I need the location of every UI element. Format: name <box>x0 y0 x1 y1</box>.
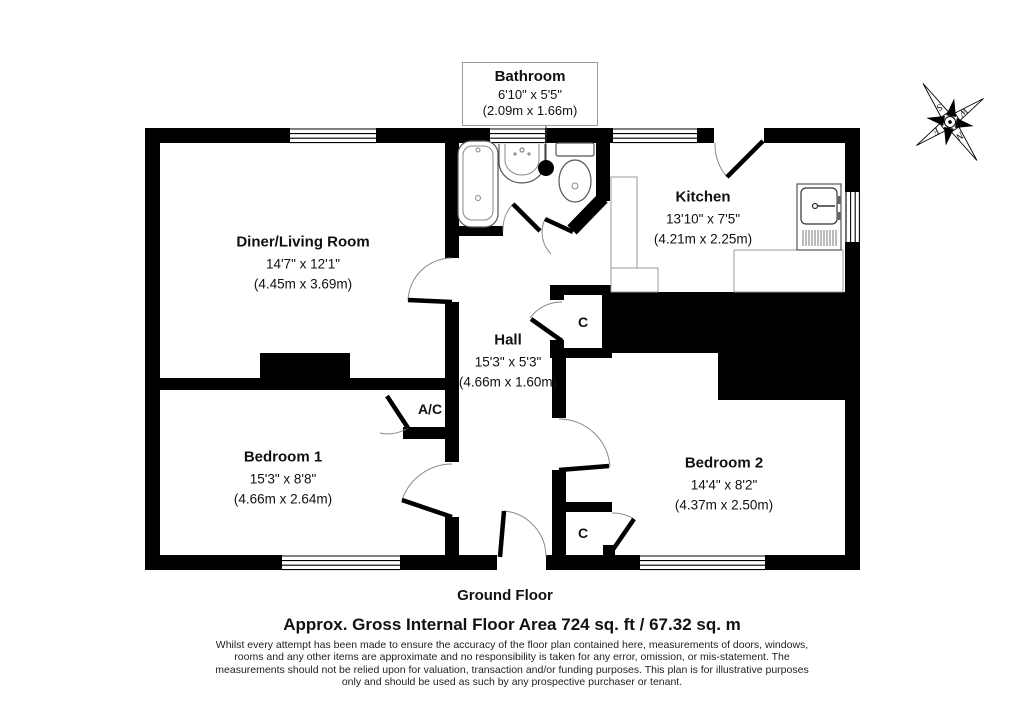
compass-point-east <box>914 123 945 149</box>
disclaimer-line-2: rooms and any other items are approximat… <box>0 651 1024 663</box>
window-bedroom1 <box>282 555 400 570</box>
disclaimer-line-3: measurements should not be relied upon f… <box>0 664 1024 676</box>
front-door-leaf <box>500 511 504 557</box>
bathtub <box>458 141 498 227</box>
window-bedroom2 <box>640 555 765 570</box>
closet-label-hall: C <box>578 314 588 330</box>
window-kitchen-top <box>613 128 697 143</box>
bathroom-dims-metric: (2.09m x 1.66m) <box>463 103 597 120</box>
chimney-breast <box>260 353 350 378</box>
bedroom2-door-leaf <box>559 466 609 470</box>
bathroom-dims-imperial: 6'10" x 5'5" <box>463 87 597 104</box>
bathroom-callout: Bathroom 6'10" x 5'5" (2.09m x 1.66m) <box>462 62 598 126</box>
bathroom-sink <box>499 144 545 183</box>
window-kitchen-right <box>845 192 860 242</box>
living-room-door-leaf <box>408 300 452 302</box>
bedroom2-closet-door-leaf <box>612 519 634 551</box>
room-label-bedroom2: Bedroom 2 14'4" x 8'2" (4.37m x 2.50m) <box>675 453 773 516</box>
bedroom1-door-leaf <box>402 500 452 517</box>
fixtures <box>458 141 843 292</box>
room-label-diner-living: Diner/Living Room 14'7" x 12'1" (4.45m x… <box>236 232 369 295</box>
window-living-room <box>290 128 376 143</box>
compass-rose: N S E W <box>889 60 1010 184</box>
floor-area-summary: Approx. Gross Internal Floor Area 724 sq… <box>0 615 1024 635</box>
disclaimer-line-4: only and should be used as such by any p… <box>0 676 1024 688</box>
room-label-hall: Hall 15'3" x 5'3" (4.66m x 1.60m) <box>459 330 557 393</box>
ac-closet-door-leaf <box>387 396 408 428</box>
disclaimer-line-1: Whilst every attempt has been made to en… <box>0 639 1024 651</box>
compass-point-south <box>919 81 948 117</box>
closet-label-ac: A/C <box>418 401 442 417</box>
window-bathroom <box>490 128 545 143</box>
room-label-kitchen: Kitchen 13'10" x 7'5" (4.21m x 2.25m) <box>654 187 752 250</box>
kitchen-back-door-arc <box>715 143 727 177</box>
bedroom2-closet-door-arc <box>612 513 634 519</box>
floor-plan-page: N S E W Bathroom 6'10" x 5'5" (2.09m x 1… <box>0 0 1024 723</box>
living-room-door-arc <box>408 258 452 300</box>
room-label-bedroom1: Bedroom 1 15'3" x 8'8" (4.66m x 2.64m) <box>234 447 332 510</box>
kitchen-hall-door-arc <box>542 219 551 254</box>
closet-label-bedroom2: C <box>578 525 588 541</box>
bathroom-door-leaf <box>513 204 540 231</box>
bedroom1-door-arc <box>402 464 452 500</box>
bedroom2-door-arc <box>559 419 610 467</box>
floor-title: Ground Floor <box>0 587 1010 604</box>
kitchen-back-door-leaf <box>727 141 763 177</box>
toilet <box>556 143 594 202</box>
front-door-arc <box>504 511 546 557</box>
bathroom-name: Bathroom <box>463 67 597 87</box>
bathroom-door-arc <box>503 204 513 231</box>
disclaimer: Whilst every attempt has been made to en… <box>0 639 1024 688</box>
kitchen-sink <box>797 184 842 250</box>
